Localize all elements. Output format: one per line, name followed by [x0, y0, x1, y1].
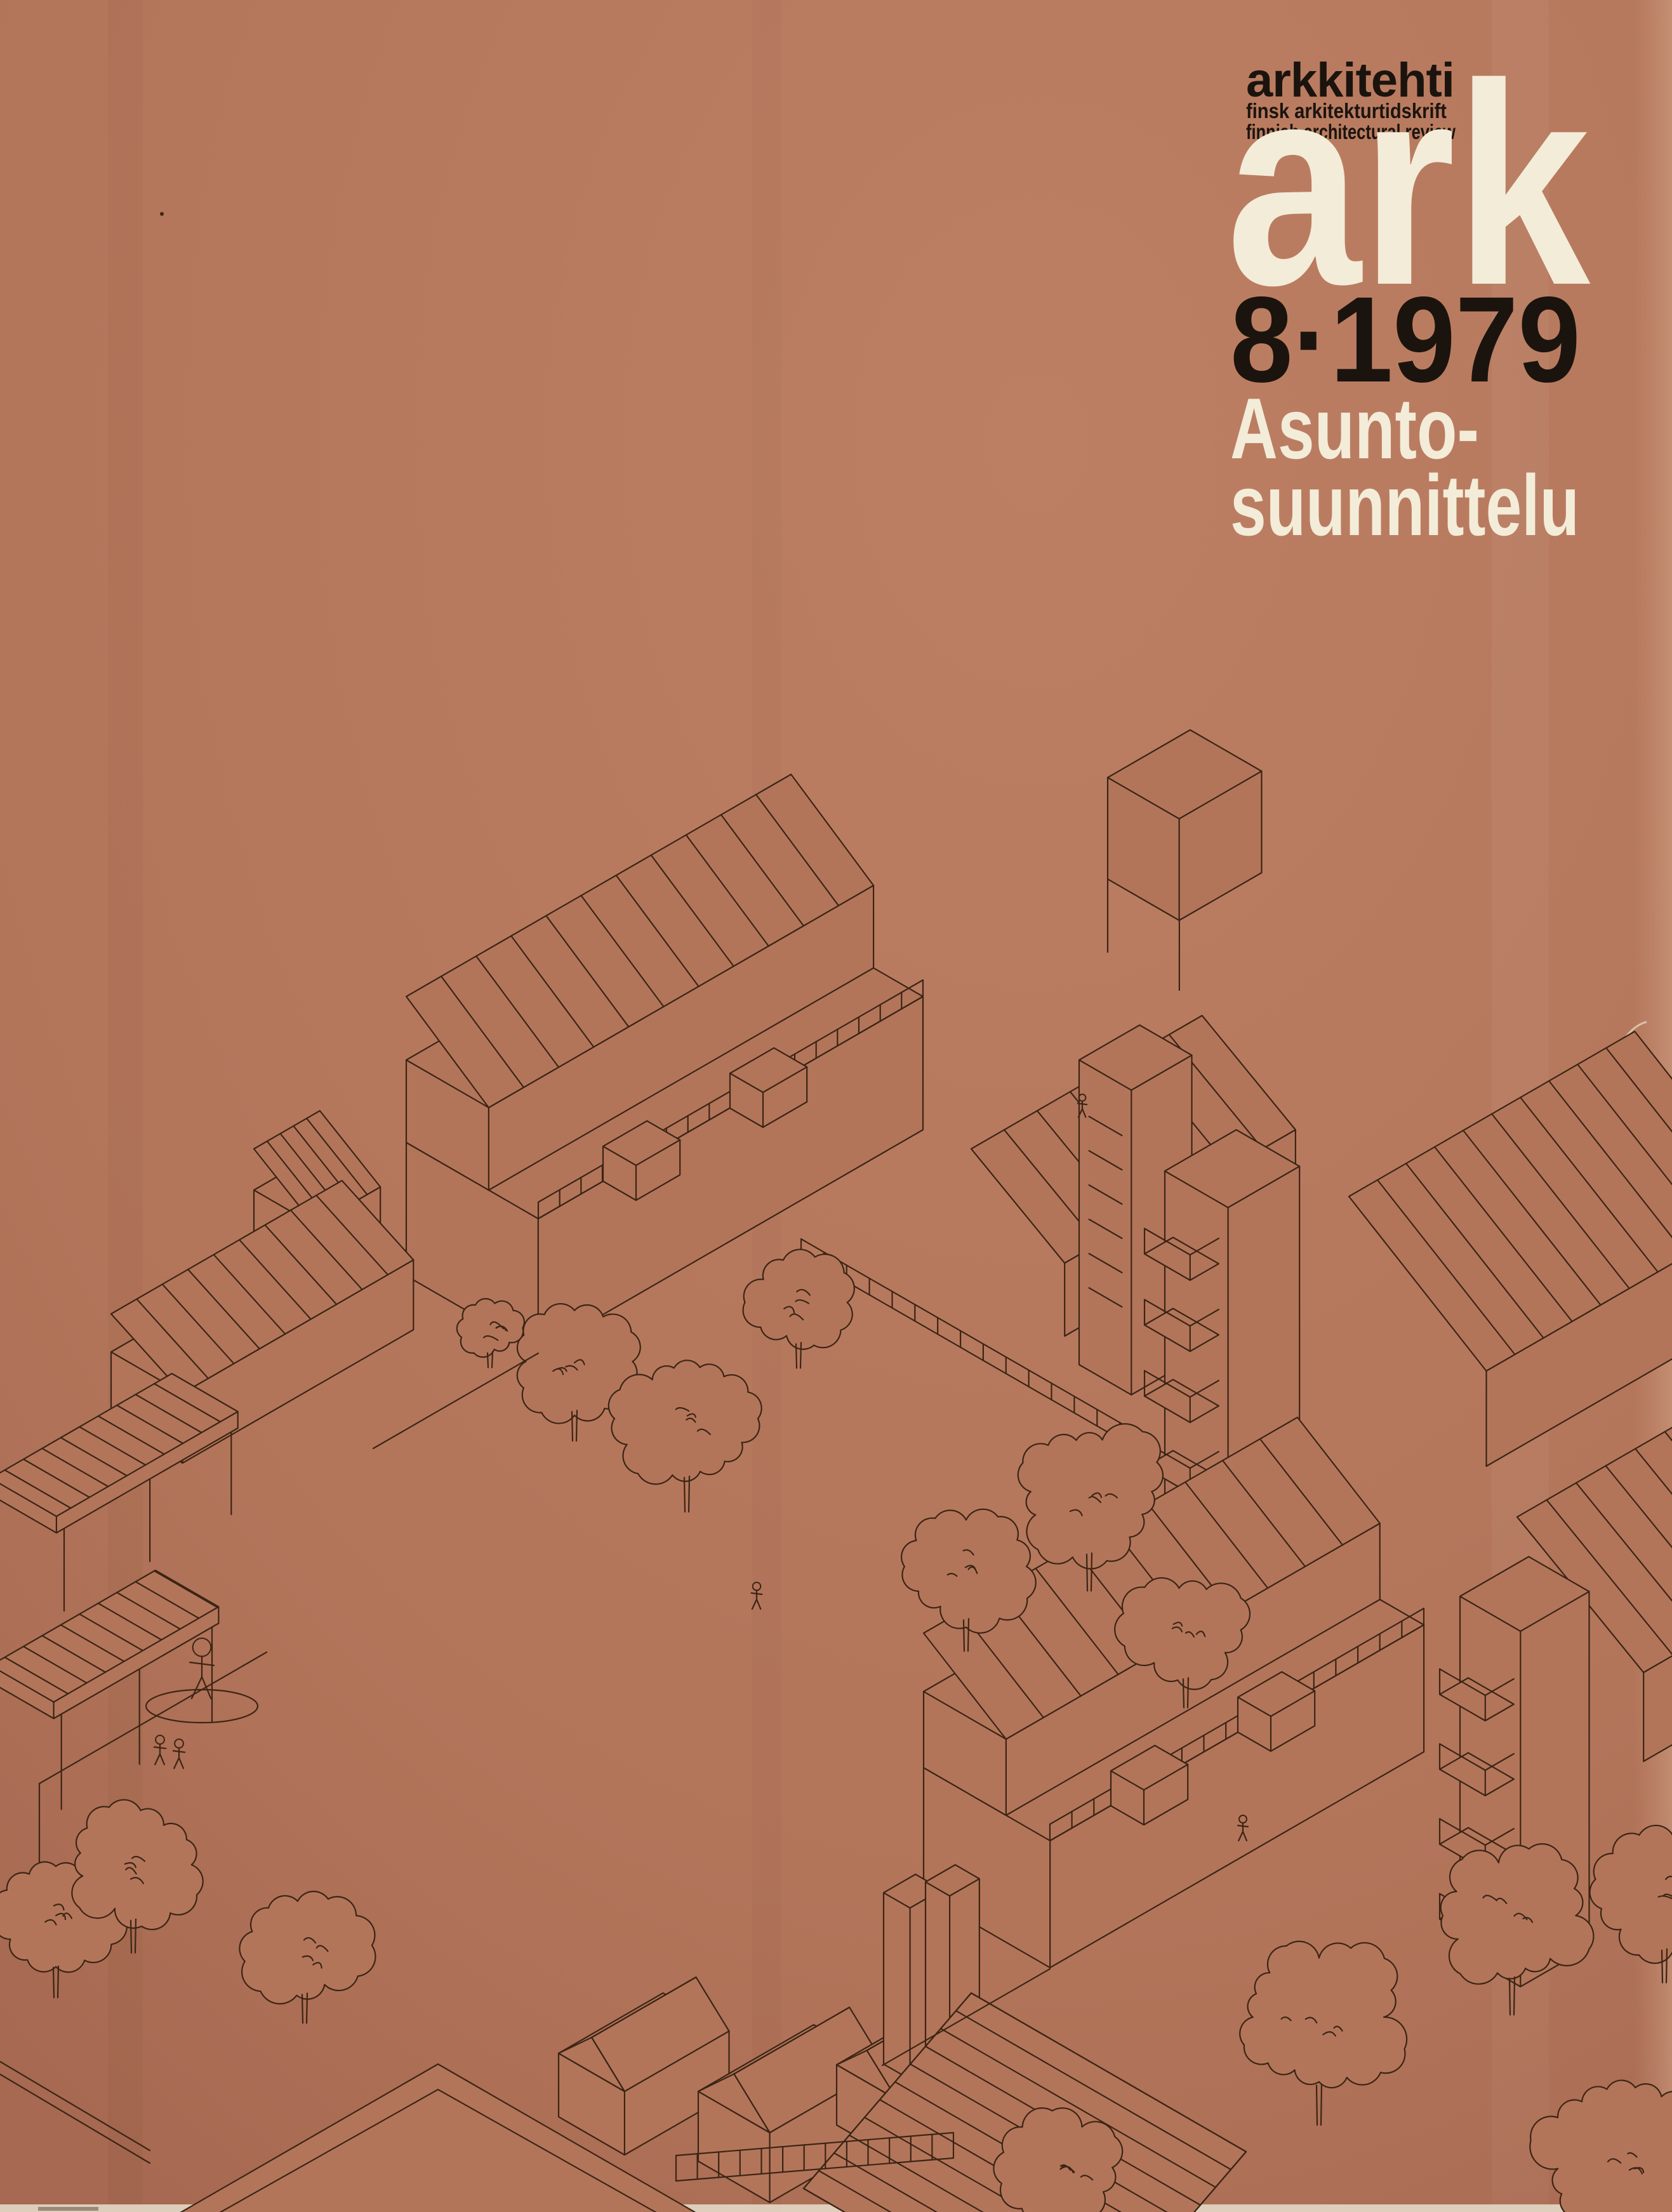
masthead: arkkitehti finsk arkitekturtidskrift fin… [1226, 24, 1591, 553]
cover-artwork: arkkitehti finsk arkitekturtidskrift fin… [0, 0, 1672, 2212]
magazine-cover: arkkitehti finsk arkitekturtidskrift fin… [0, 0, 1672, 2212]
cover-theme-line2: suunnittelu [1230, 457, 1579, 553]
